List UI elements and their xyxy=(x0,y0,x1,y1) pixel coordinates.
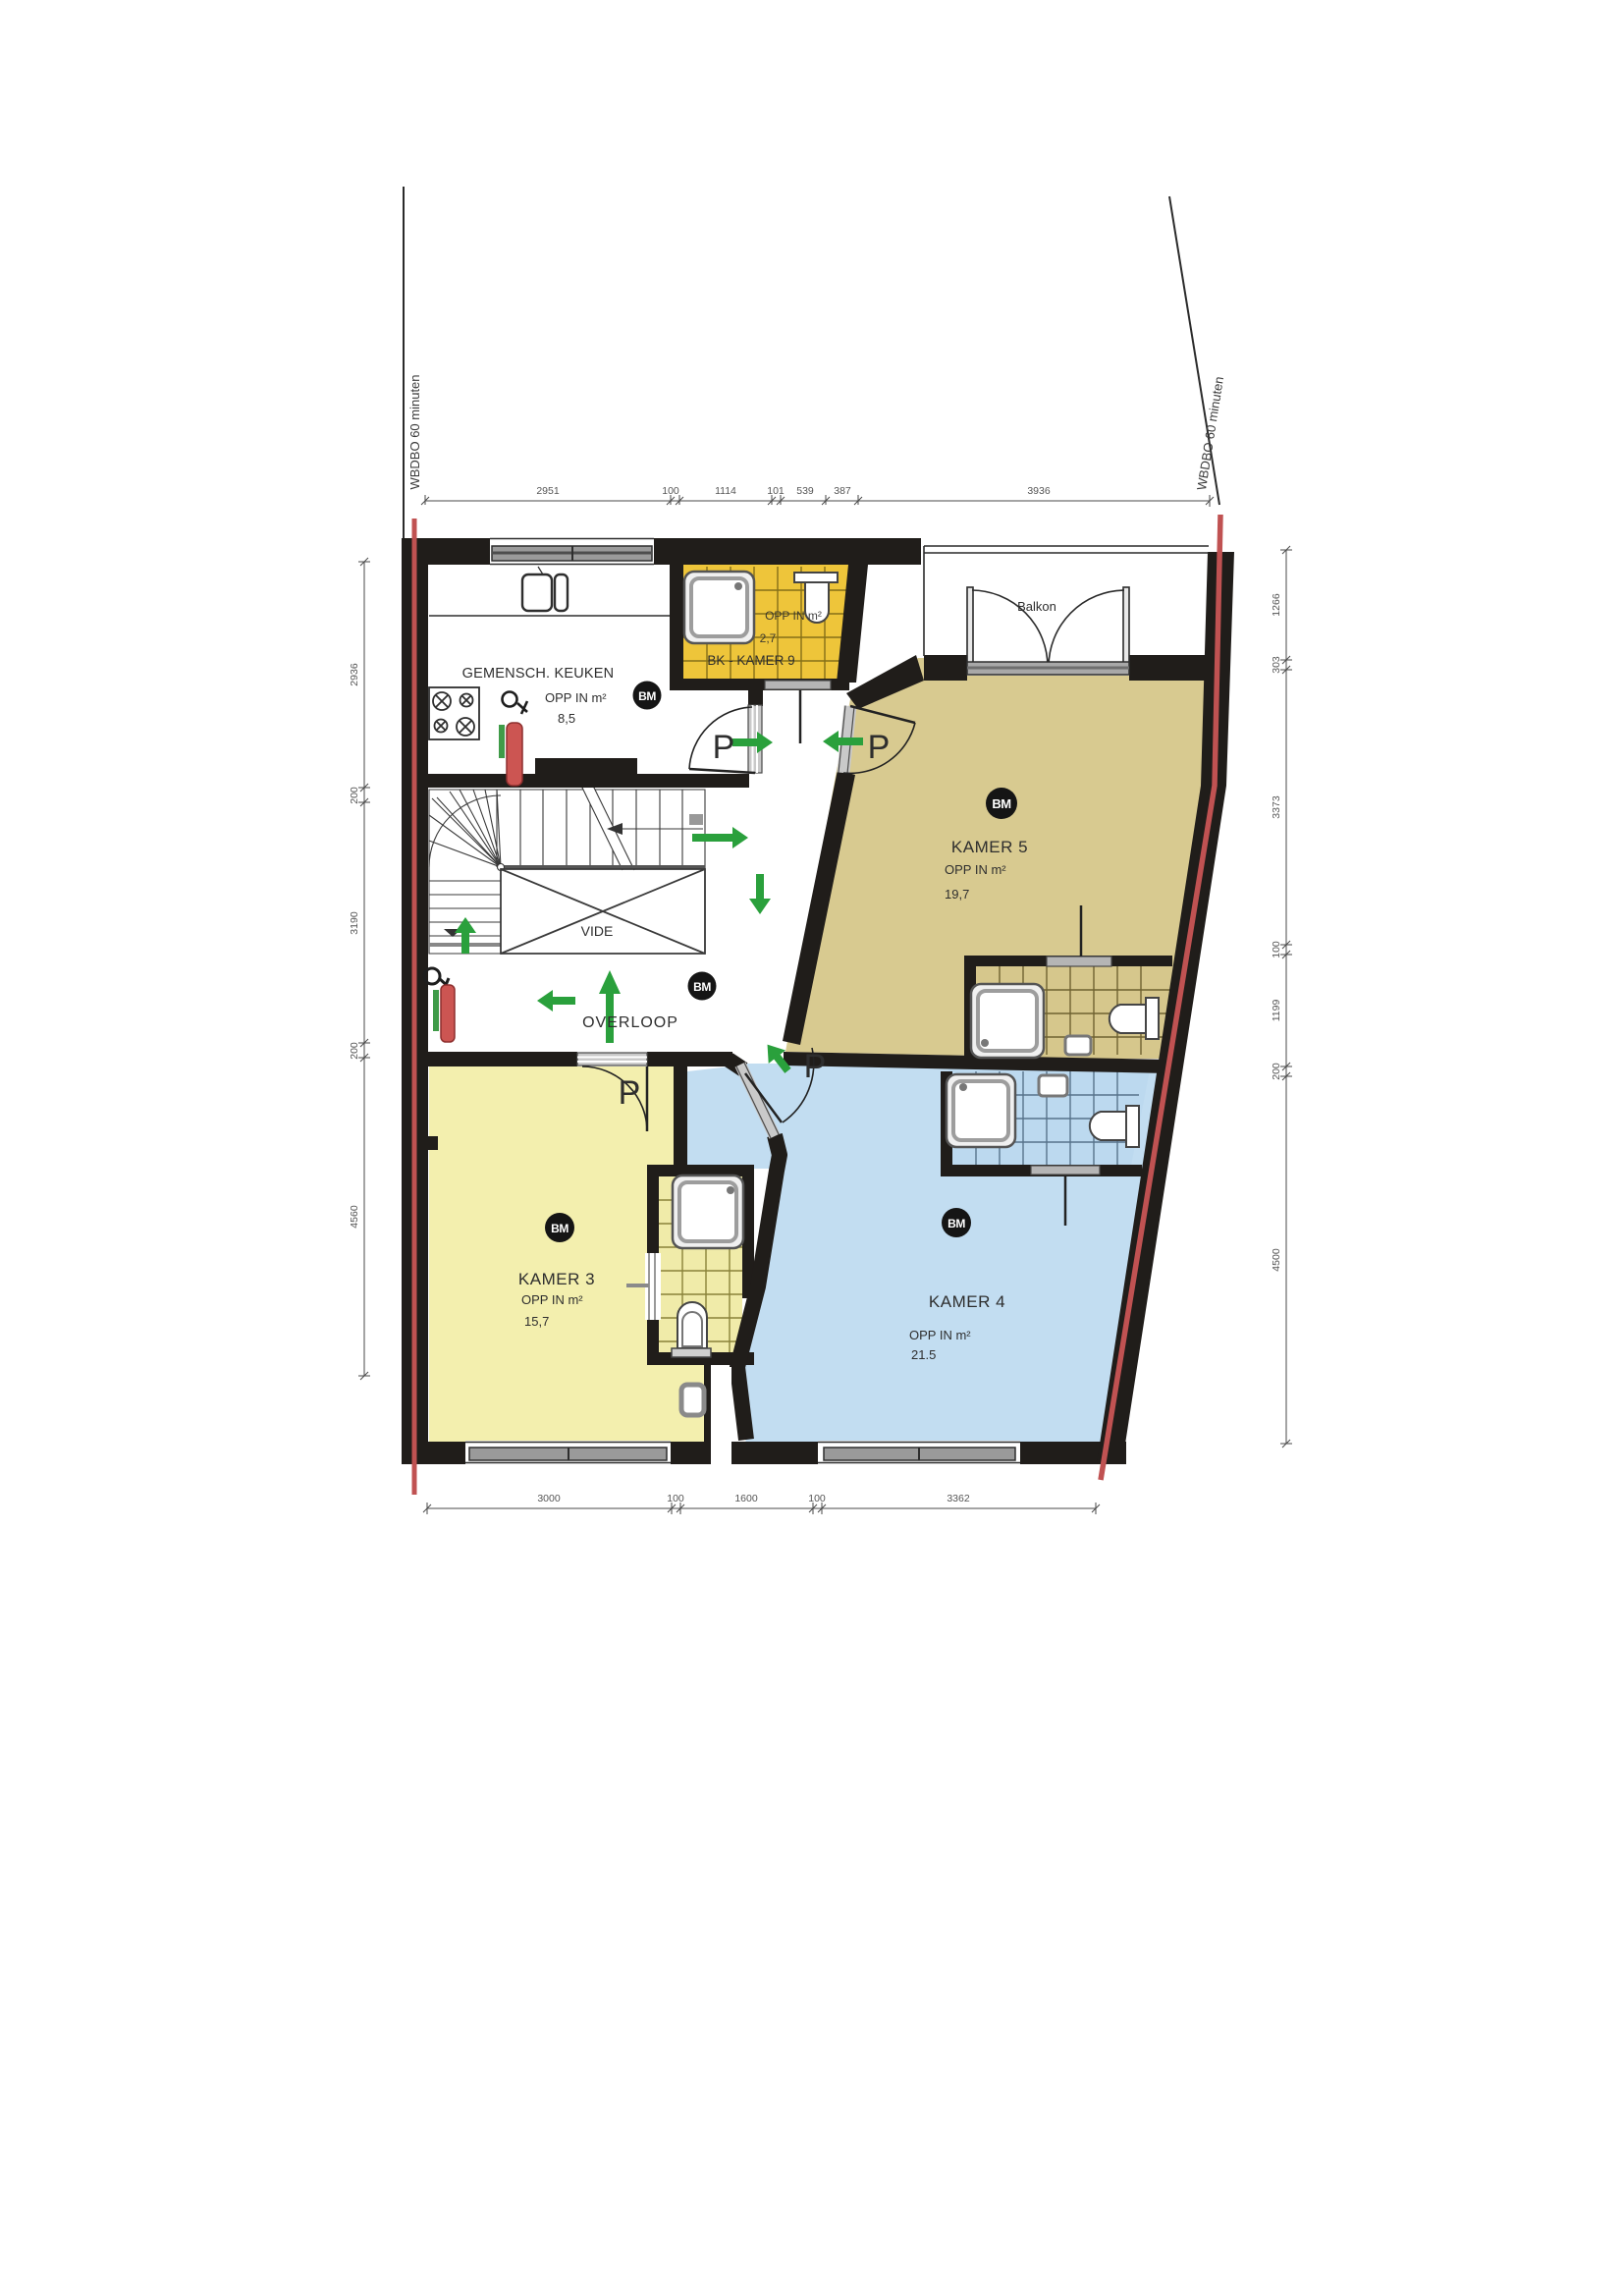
svg-text:3373: 3373 xyxy=(1271,795,1282,819)
svg-text:3362: 3362 xyxy=(947,1493,970,1504)
svg-text:OPP IN m²: OPP IN m² xyxy=(909,1328,971,1342)
svg-text:200: 200 xyxy=(349,787,360,804)
svg-text:BK - KAMER 9: BK - KAMER 9 xyxy=(707,653,794,668)
svg-text:KAMER 4: KAMER 4 xyxy=(929,1292,1005,1311)
svg-text:2936: 2936 xyxy=(349,663,360,686)
svg-text:303: 303 xyxy=(1271,656,1282,674)
svg-text:KAMER 5: KAMER 5 xyxy=(951,838,1028,856)
svg-text:4500: 4500 xyxy=(1271,1248,1282,1272)
svg-text:1199: 1199 xyxy=(1271,1000,1282,1022)
svg-text:19,7: 19,7 xyxy=(945,887,969,902)
svg-text:539: 539 xyxy=(796,485,814,497)
svg-text:OVERLOOP: OVERLOOP xyxy=(582,1014,678,1031)
svg-text:BM: BM xyxy=(551,1222,568,1235)
svg-text:15,7: 15,7 xyxy=(524,1314,549,1329)
svg-text:OPP IN m²: OPP IN m² xyxy=(521,1292,583,1307)
svg-text:WBDBO 60 minuten: WBDBO 60 minuten xyxy=(407,374,422,489)
svg-text:200: 200 xyxy=(1271,1063,1282,1080)
svg-text:3190: 3190 xyxy=(349,911,360,935)
svg-text:100: 100 xyxy=(808,1493,826,1504)
svg-text:200: 200 xyxy=(349,1042,360,1060)
svg-text:3936: 3936 xyxy=(1027,485,1051,497)
svg-text:GEMENSCH. KEUKEN: GEMENSCH. KEUKEN xyxy=(462,666,615,682)
svg-text:KAMER 3: KAMER 3 xyxy=(518,1270,595,1288)
svg-text:101: 101 xyxy=(767,485,785,497)
svg-text:VIDE: VIDE xyxy=(581,923,614,939)
svg-text:100: 100 xyxy=(662,485,679,497)
svg-text:OPP IN m²: OPP IN m² xyxy=(545,690,607,705)
svg-text:P: P xyxy=(868,729,891,766)
svg-text:387: 387 xyxy=(834,485,851,497)
svg-text:1266: 1266 xyxy=(1271,593,1282,617)
svg-text:P: P xyxy=(713,729,735,766)
svg-text:1114: 1114 xyxy=(715,485,736,497)
svg-text:21.5: 21.5 xyxy=(911,1347,936,1362)
svg-text:P: P xyxy=(804,1048,827,1085)
svg-text:100: 100 xyxy=(667,1493,684,1504)
svg-text:P: P xyxy=(619,1074,641,1112)
svg-text:1600: 1600 xyxy=(734,1493,758,1504)
svg-text:3000: 3000 xyxy=(537,1493,561,1504)
svg-text:Balkon: Balkon xyxy=(1017,599,1056,614)
svg-text:BM: BM xyxy=(992,796,1010,811)
svg-text:OPP IN m²: OPP IN m² xyxy=(945,862,1006,877)
svg-text:BM: BM xyxy=(947,1217,965,1230)
svg-text:BM: BM xyxy=(638,689,656,703)
svg-text:OPP IN m²: OPP IN m² xyxy=(765,609,822,623)
svg-text:BM: BM xyxy=(693,980,711,994)
svg-text:2,7: 2,7 xyxy=(760,631,777,645)
svg-text:100: 100 xyxy=(1271,941,1282,958)
svg-text:2951: 2951 xyxy=(536,485,560,497)
svg-text:8,5: 8,5 xyxy=(558,711,575,726)
svg-text:4560: 4560 xyxy=(349,1205,360,1229)
